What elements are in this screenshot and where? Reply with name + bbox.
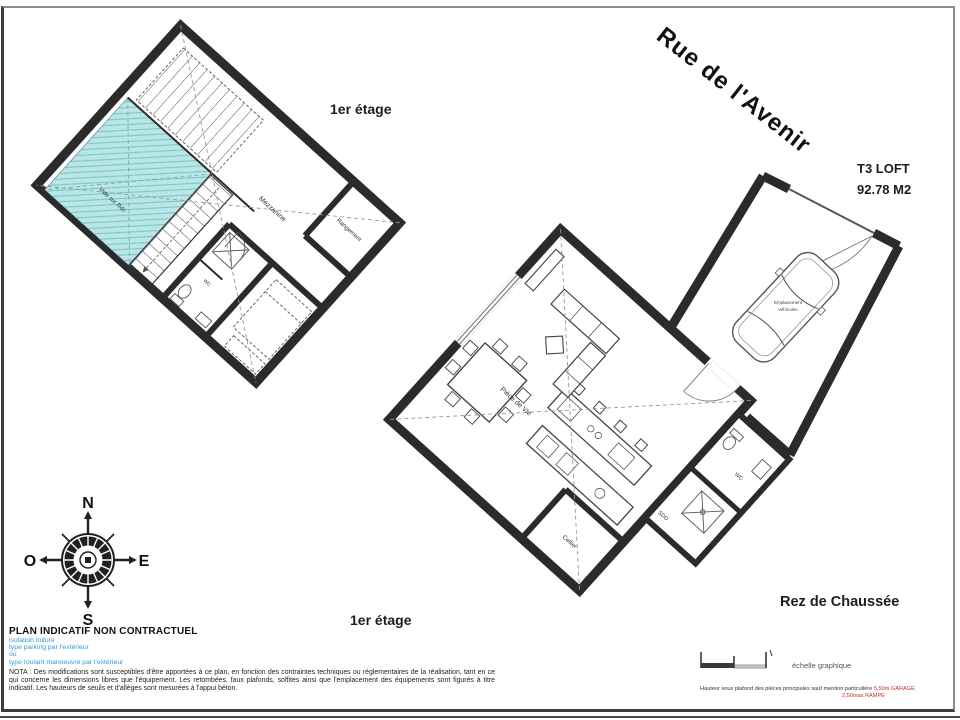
garage-label-line1: Emplacement — [774, 300, 803, 305]
blue-note-4: type roulant manoeuvré par l'extérieur — [9, 659, 495, 666]
garage-label-line2: véhicules — [778, 307, 798, 312]
height-note-black: Hauteur sous plafond des pièces principa… — [700, 686, 872, 692]
compass-rose: N S O E — [24, 495, 150, 629]
unit-area: 92.78 M2 — [857, 179, 911, 200]
legal-title: PLAN INDICATIF NON CONTRACTUEL — [9, 626, 495, 637]
height-note-red2: 2,50max RAMPE — [842, 693, 956, 700]
first-floor-plan: Mezzanine Rangement Vide sur Rdc WC — [37, 25, 400, 382]
scale-bar — [701, 650, 772, 668]
scale-caption: échelle graphique — [792, 661, 851, 670]
first-floor-title-top: 1er étage — [330, 101, 391, 117]
unit-label: T3 LOFT 92.78 M2 — [857, 158, 911, 200]
height-note-red1: 5,50m GARAGE — [874, 686, 915, 692]
compass-north-label: N — [82, 495, 94, 512]
nota-text: NOTA : Des modifications sont susceptibl… — [9, 669, 495, 693]
blue-note-1: isolation toiture — [9, 637, 495, 644]
blue-note-2: type parking par l'extérieur — [9, 644, 495, 651]
unit-type: T3 LOFT — [857, 158, 911, 179]
ground-floor-title: Rez de Chaussée — [780, 594, 899, 610]
height-note: Hauteur sous plafond des pièces principa… — [700, 686, 956, 700]
floorplan-drawing: Mezzanine Rangement Vide sur Rdc WC Empl… — [0, 0, 960, 720]
blue-note-3: ou — [9, 651, 495, 658]
legal-block: PLAN INDICATIF NON CONTRACTUEL isolation… — [9, 626, 495, 693]
compass-east-label: E — [139, 553, 150, 570]
compass-west-label: O — [24, 553, 36, 570]
